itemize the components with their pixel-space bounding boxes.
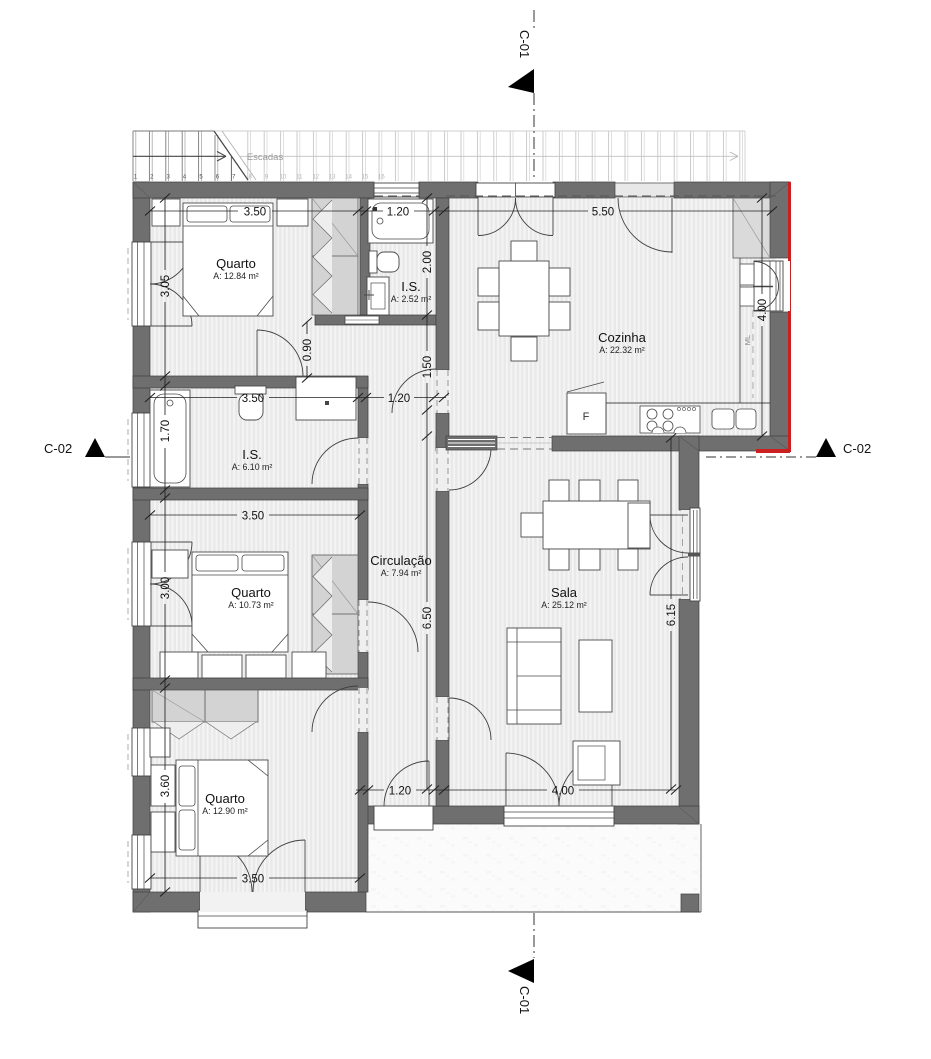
svg-text:6.15: 6.15 (666, 604, 678, 626)
svg-text:4.00: 4.00 (757, 299, 769, 321)
svg-text:3.50: 3.50 (242, 393, 264, 405)
svg-text:F: F (583, 411, 590, 423)
svg-text:4.00: 4.00 (552, 786, 574, 798)
svg-text:16: 16 (378, 175, 385, 181)
svg-text:1.70: 1.70 (160, 420, 172, 442)
svg-text:A: 10.73 m²: A: 10.73 m² (228, 600, 274, 610)
svg-text:A: 12.84 m²: A: 12.84 m² (213, 271, 259, 281)
svg-text:10: 10 (280, 175, 287, 181)
svg-text:A: 6.10 m²: A: 6.10 m² (232, 462, 273, 472)
svg-text:0.90: 0.90 (302, 339, 314, 361)
svg-text:C-01: C-01 (517, 986, 532, 1014)
svg-text:3.50: 3.50 (244, 207, 266, 219)
svg-text:Quarto: Quarto (205, 791, 245, 806)
svg-text:1.20: 1.20 (389, 786, 411, 798)
svg-text:3.05: 3.05 (160, 275, 172, 297)
svg-text:A: 7.94 m²: A: 7.94 m² (381, 568, 422, 578)
svg-text:C-01: C-01 (517, 30, 532, 58)
svg-text:A: 25.12 m²: A: 25.12 m² (541, 600, 587, 610)
svg-text:Quarto: Quarto (231, 585, 271, 600)
svg-text:1.20: 1.20 (387, 207, 409, 219)
svg-text:A: 22.32 m²: A: 22.32 m² (599, 345, 645, 355)
svg-text:I.S.: I.S. (242, 447, 262, 462)
svg-text:13: 13 (329, 175, 336, 181)
svg-text:1.20: 1.20 (388, 393, 410, 405)
svg-text:5.50: 5.50 (592, 207, 614, 219)
svg-text:15: 15 (362, 175, 369, 181)
svg-text:1.50: 1.50 (422, 356, 434, 378)
svg-text:A: 2.52 m²: A: 2.52 m² (391, 294, 432, 304)
svg-text:2.00: 2.00 (422, 251, 434, 273)
svg-text:Sala: Sala (551, 585, 578, 600)
svg-text:11: 11 (296, 175, 303, 181)
svg-text:3.60: 3.60 (160, 775, 172, 797)
svg-text:14: 14 (345, 175, 352, 181)
svg-text:Quarto: Quarto (216, 256, 256, 271)
svg-text:3.50: 3.50 (242, 874, 264, 886)
svg-text:12: 12 (312, 175, 319, 181)
svg-text:6.50: 6.50 (422, 607, 434, 629)
svg-text:Escadas: Escadas (247, 152, 284, 163)
svg-text:I.S.: I.S. (401, 279, 421, 294)
svg-text:A: 12.90 m²: A: 12.90 m² (202, 806, 248, 816)
svg-text:C-02: C-02 (44, 441, 72, 456)
svg-text:3.00: 3.00 (160, 577, 172, 599)
svg-text:C-02: C-02 (843, 441, 871, 456)
svg-text:ML: ML (743, 335, 752, 345)
svg-text:Cozinha: Cozinha (598, 330, 646, 345)
svg-text:3.50: 3.50 (242, 511, 264, 523)
svg-text:Circulação: Circulação (370, 553, 431, 568)
